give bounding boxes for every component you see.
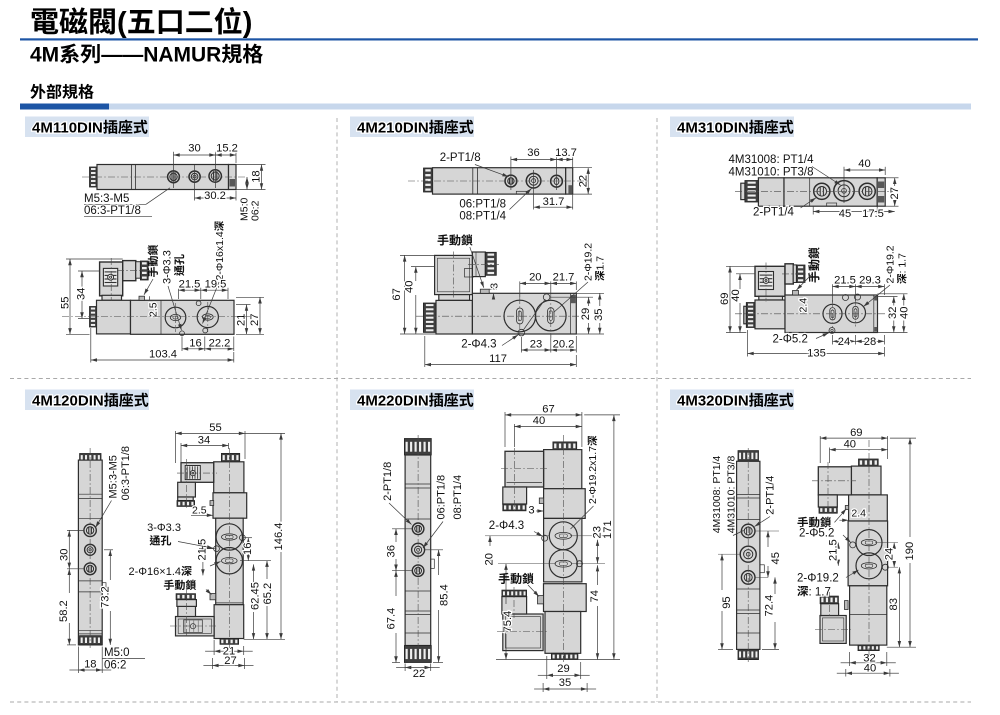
svg-text:4M31008: PT1/4: 4M31008: PT1/4 [729, 154, 815, 166]
svg-text:21.5: 21.5 [179, 278, 201, 290]
svg-text:2-PT1/4: 2-PT1/4 [765, 476, 777, 515]
svg-text:85.4: 85.4 [439, 584, 451, 606]
svg-text:3-Φ3.3: 3-Φ3.3 [147, 522, 181, 534]
svg-text:20: 20 [483, 553, 495, 565]
svg-text:4M31008: PT1/4: 4M31008: PT1/4 [711, 456, 723, 534]
svg-text:08:PT1/4: 08:PT1/4 [452, 475, 464, 520]
svg-text:4M31010: PT3/8: 4M31010: PT3/8 [729, 167, 814, 179]
svg-text:35: 35 [593, 309, 605, 321]
svg-text:06:2: 06:2 [250, 200, 262, 221]
svg-text:35: 35 [559, 677, 571, 689]
svg-text:2-Φ19.2: 2-Φ19.2 [583, 243, 595, 281]
svg-text:2.5: 2.5 [148, 302, 160, 317]
svg-text:32: 32 [887, 307, 899, 319]
svg-text:29: 29 [557, 663, 569, 675]
svg-text:36: 36 [527, 147, 539, 159]
svg-text:40: 40 [858, 158, 870, 170]
svg-text:55: 55 [60, 297, 72, 309]
svg-text:55: 55 [209, 422, 221, 434]
svg-text:2-Φ4.3: 2-Φ4.3 [489, 520, 524, 532]
svg-text:30: 30 [188, 143, 200, 155]
svg-text:67: 67 [542, 403, 554, 415]
svg-text:06:PT1/8: 06:PT1/8 [459, 199, 506, 211]
svg-text:4M220DIN: 4M220DIN [357, 393, 429, 410]
svg-text:2-Φ4.3: 2-Φ4.3 [461, 339, 496, 351]
svg-text:4M210DIN: 4M210DIN [357, 120, 429, 137]
svg-text:23: 23 [530, 338, 542, 350]
svg-text:34: 34 [76, 288, 88, 300]
svg-text:36: 36 [385, 545, 397, 557]
svg-text:18: 18 [84, 658, 96, 670]
svg-text:34: 34 [198, 434, 210, 446]
svg-text:117: 117 [489, 353, 507, 365]
svg-text:67.4: 67.4 [385, 608, 397, 630]
svg-text:(: ( [117, 7, 127, 39]
svg-text:74: 74 [589, 590, 601, 602]
svg-text:18: 18 [251, 170, 263, 182]
svg-text:190: 190 [904, 542, 916, 561]
svg-text:4M31010: PT3/8: 4M31010: PT3/8 [726, 456, 738, 534]
svg-text:69: 69 [850, 427, 862, 439]
svg-text:45: 45 [839, 208, 851, 220]
svg-text:2.4: 2.4 [851, 508, 866, 520]
svg-text:27: 27 [889, 187, 901, 199]
svg-text:24: 24 [884, 548, 896, 560]
svg-text:13.7: 13.7 [555, 147, 577, 159]
svg-text:40: 40 [844, 439, 856, 451]
svg-text:2-Φ5.2: 2-Φ5.2 [773, 334, 808, 346]
svg-text:16: 16 [189, 337, 201, 349]
svg-text:3: 3 [489, 283, 501, 289]
svg-text:1.7: 1.7 [595, 256, 607, 271]
svg-text:2-Φ19.2: 2-Φ19.2 [797, 573, 839, 585]
svg-text:45: 45 [770, 552, 782, 564]
svg-text:95: 95 [721, 596, 733, 608]
svg-text:30: 30 [59, 549, 71, 561]
svg-text:17.5: 17.5 [862, 208, 884, 220]
svg-text:4M120DIN: 4M120DIN [32, 393, 104, 410]
svg-text:171: 171 [602, 520, 614, 539]
svg-text:06:PT1/8: 06:PT1/8 [436, 475, 448, 520]
svg-text:22.2: 22.2 [209, 337, 231, 349]
svg-text:2-Φ19.2x1.7: 2-Φ19.2x1.7 [587, 446, 599, 504]
svg-text:146.4: 146.4 [273, 523, 285, 551]
svg-text:2-PT1/4: 2-PT1/4 [753, 207, 795, 219]
svg-text:22: 22 [413, 668, 425, 680]
svg-text:21.7: 21.7 [553, 272, 575, 284]
svg-text:M5:3-M5: M5:3-M5 [108, 455, 120, 498]
svg-text:2-Φ19.2: 2-Φ19.2 [884, 245, 896, 283]
svg-text:16: 16 [242, 543, 254, 555]
svg-text:40: 40 [404, 281, 416, 293]
svg-text:21.5: 21.5 [834, 275, 856, 287]
svg-text:40: 40 [898, 307, 910, 319]
svg-text:28: 28 [864, 336, 876, 348]
svg-text:21: 21 [236, 314, 248, 326]
svg-text:4M110DIN: 4M110DIN [32, 120, 103, 137]
svg-text:3-Φ3.3: 3-Φ3.3 [161, 250, 173, 284]
svg-text:4M320DIN: 4M320DIN [677, 393, 749, 410]
svg-text:19.5: 19.5 [205, 278, 227, 290]
svg-text:27: 27 [249, 314, 261, 326]
svg-text:21.5: 21.5 [828, 539, 840, 561]
svg-text:15.2: 15.2 [216, 143, 238, 155]
svg-text:40: 40 [864, 663, 876, 675]
svg-text:M5:3-M5: M5:3-M5 [84, 193, 129, 205]
svg-text:2-Φ16x1.4: 2-Φ16x1.4 [214, 231, 226, 280]
svg-text:67: 67 [391, 288, 403, 300]
svg-text:62.45: 62.45 [249, 582, 261, 610]
svg-text:75.4: 75.4 [502, 611, 514, 633]
svg-text:40: 40 [533, 415, 545, 427]
svg-text:29: 29 [580, 308, 592, 320]
svg-text:2-Φ5.2: 2-Φ5.2 [799, 527, 834, 539]
svg-text:58.2: 58.2 [58, 600, 70, 622]
svg-text:06:3-PT1/8: 06:3-PT1/8 [84, 205, 141, 217]
svg-text:20.2: 20.2 [553, 338, 575, 350]
svg-text:: 1.7: : 1.7 [809, 586, 831, 598]
svg-text:2-PT1/8: 2-PT1/8 [440, 152, 481, 164]
svg-text:M5:0: M5:0 [104, 647, 130, 659]
svg-text:29.3: 29.3 [859, 275, 881, 287]
svg-text:72.4: 72.4 [764, 595, 776, 617]
svg-text:103.4: 103.4 [149, 349, 177, 361]
svg-text:30.2: 30.2 [204, 190, 226, 202]
svg-text:——NAMUR: ——NAMUR [101, 44, 221, 67]
svg-text:135: 135 [807, 348, 826, 360]
svg-text:: 1.7: : 1.7 [897, 253, 909, 274]
svg-text:65.2: 65.2 [262, 583, 274, 605]
svg-text:): ) [243, 7, 253, 39]
svg-text:23: 23 [592, 526, 604, 538]
svg-text:2-PT1/8: 2-PT1/8 [382, 462, 394, 501]
svg-text:4M310DIN: 4M310DIN [677, 120, 749, 137]
svg-text:24: 24 [838, 336, 850, 348]
svg-text:31.7: 31.7 [543, 196, 565, 208]
svg-text:40: 40 [730, 289, 742, 301]
svg-text:2-Φ16×1.4: 2-Φ16×1.4 [129, 566, 182, 578]
svg-text:06:3-PT1/8: 06:3-PT1/8 [120, 446, 132, 500]
svg-text:2.5: 2.5 [192, 505, 207, 517]
svg-text:3: 3 [528, 505, 534, 517]
svg-text:73.2: 73.2 [100, 586, 112, 608]
svg-text:2.4: 2.4 [797, 298, 809, 313]
svg-text:08:PT1/4: 08:PT1/4 [459, 211, 506, 223]
svg-text:21.5: 21.5 [196, 539, 208, 561]
svg-text:27: 27 [224, 655, 236, 667]
svg-text:20: 20 [529, 272, 541, 284]
svg-text:4M: 4M [30, 44, 59, 67]
svg-text:83: 83 [888, 598, 900, 610]
